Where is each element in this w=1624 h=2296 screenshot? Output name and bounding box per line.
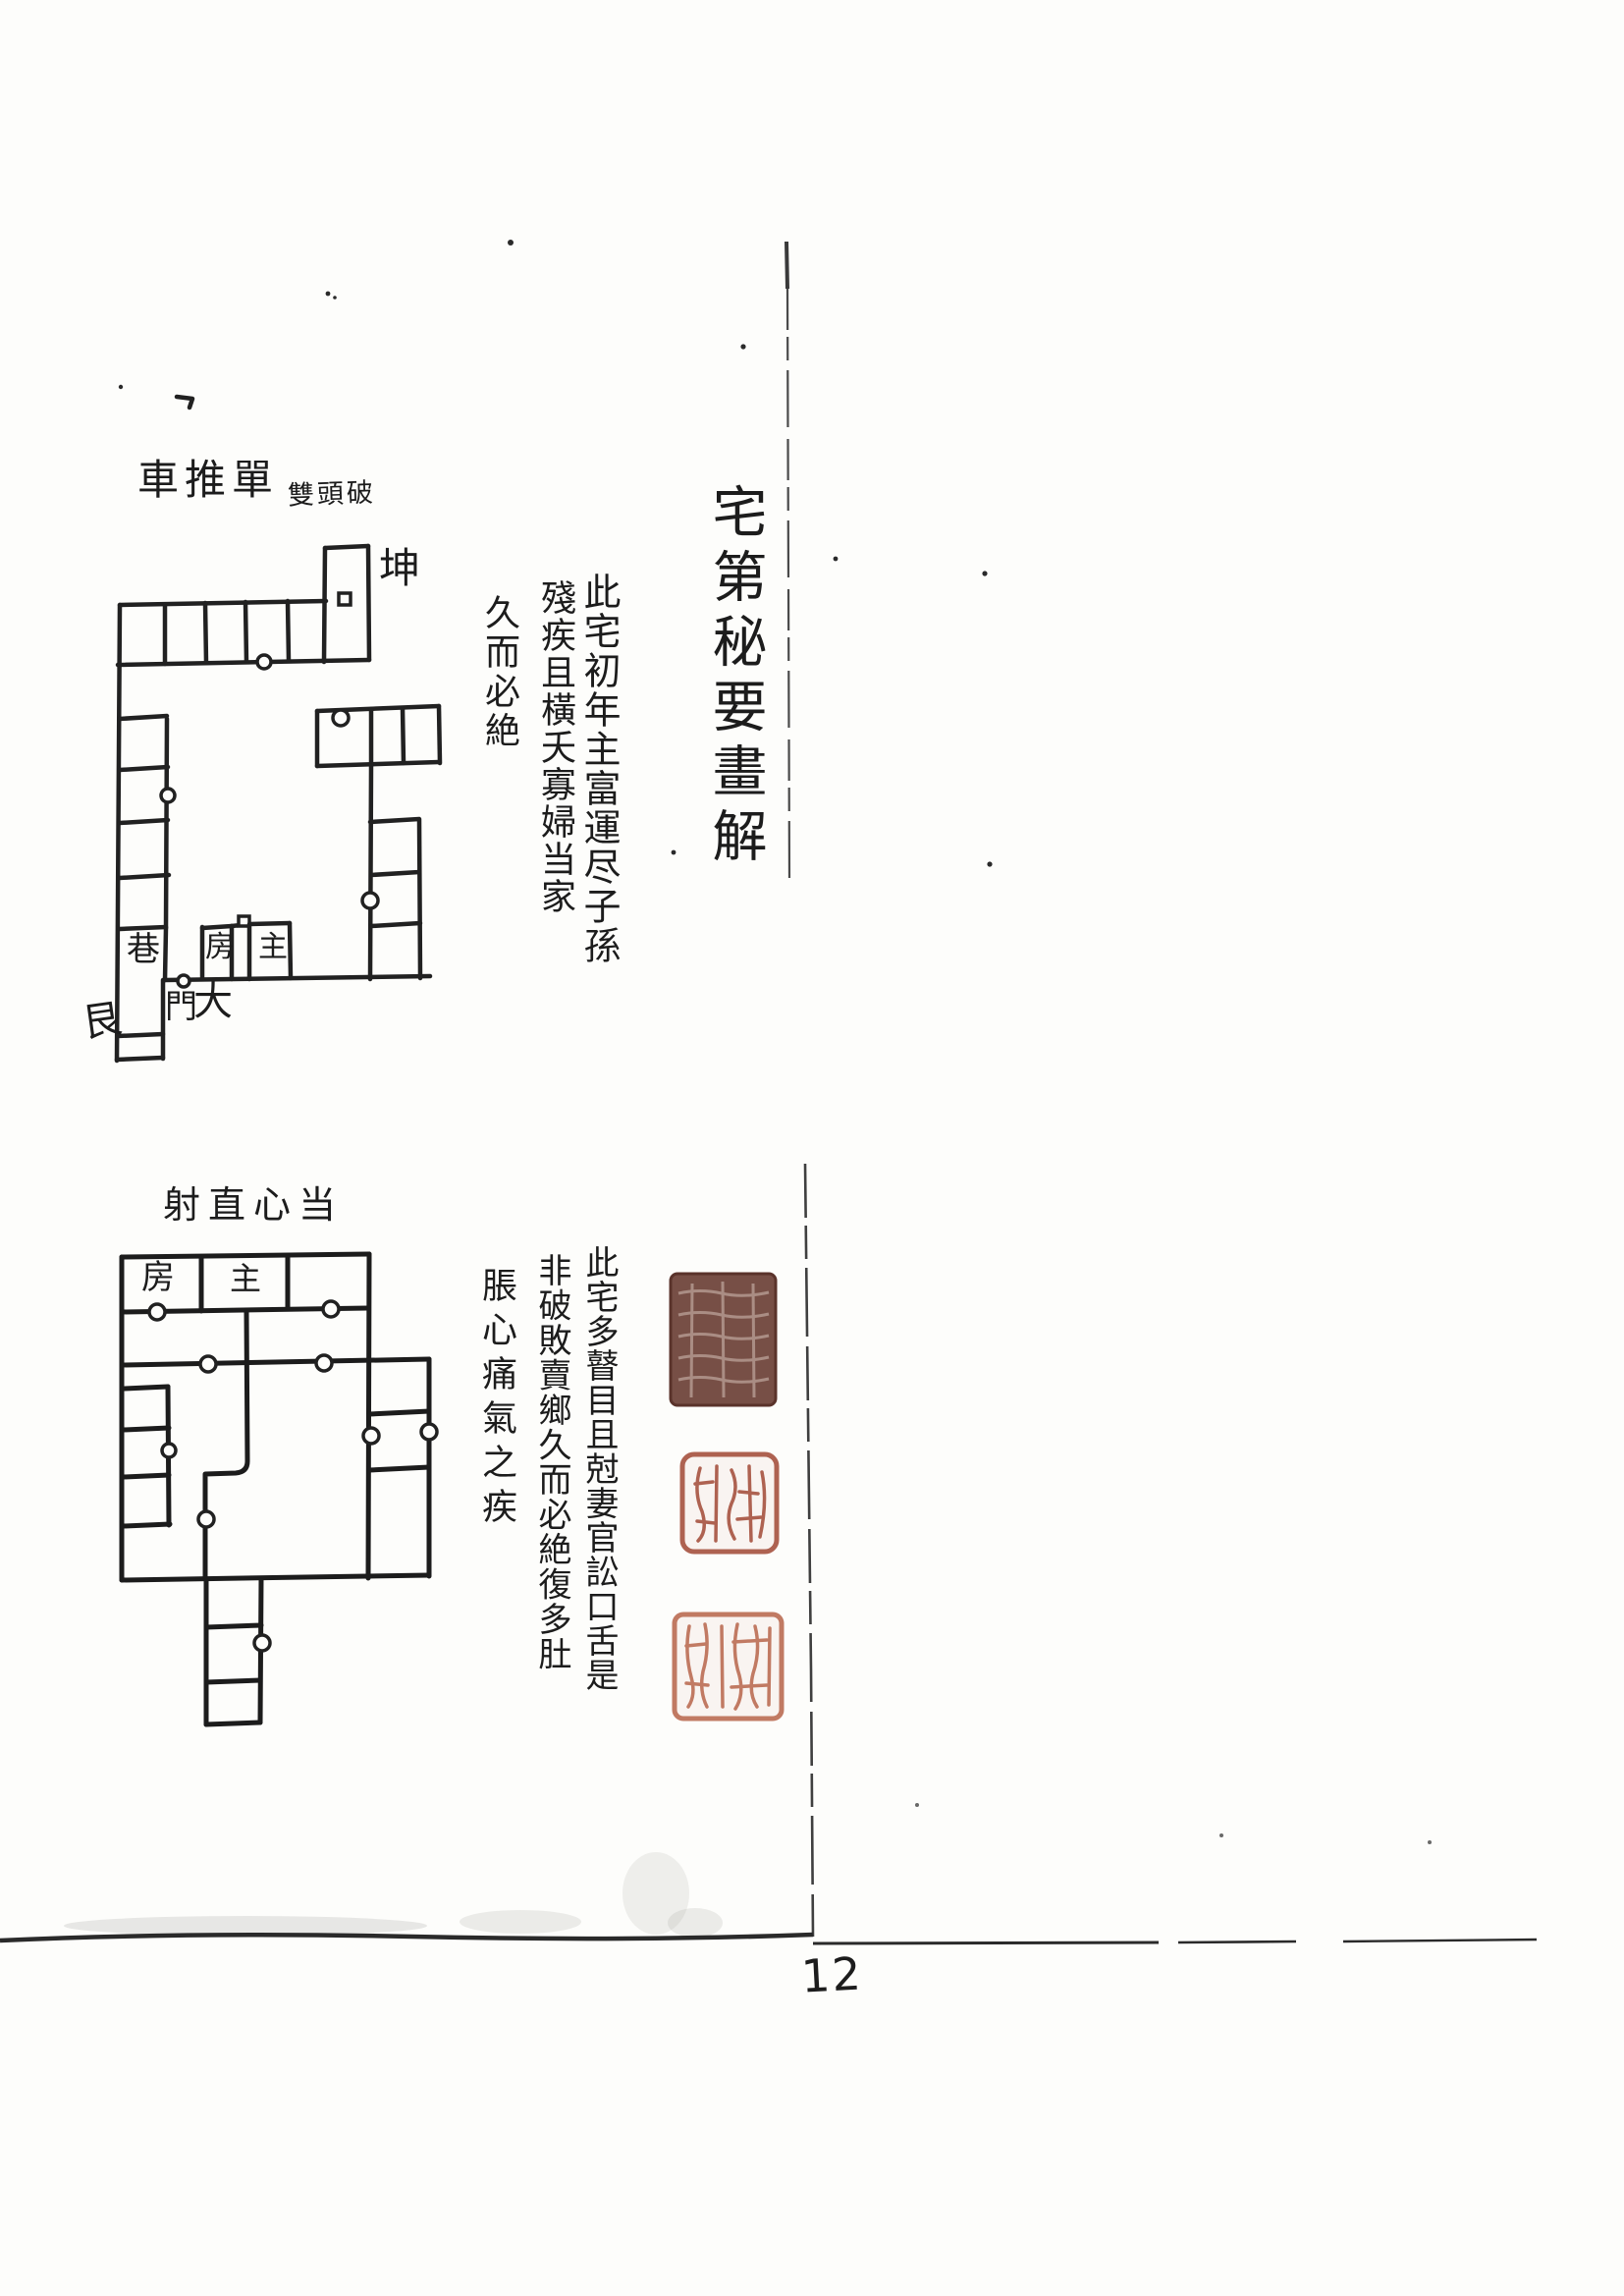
door-marker [339,593,351,605]
diagram2-main-label: 主 [230,1263,261,1294]
diagram2-room-label: 房 [141,1261,175,1294]
seal-2-red-relief [682,1454,777,1552]
door-marker [316,1355,332,1371]
diagram1-main-label: 主 [258,933,288,962]
page-title: 宅第秘要畫解 [707,483,762,872]
diagram1-caption: 車推單 [137,460,279,501]
diagram1-caption-note: 雙頭破 [288,479,377,509]
diagram1-room-label: 房 [205,933,235,962]
diagram1-commentary-col1: 此宅初年主富運尽子孫 [580,573,618,965]
scanned-manuscript-page: 宅第秘要畫解 車推單 雙頭破 坤 艮 巷 房 主 大 門 此宅初年主富運尽子孫 … [0,0,1624,2296]
diagram2-caption: 射直心当 [163,1186,344,1224]
diagram1-gate-label-men: 門 [165,990,197,1022]
door-marker [162,1444,176,1457]
door-marker [149,1304,165,1320]
door-marker [333,710,349,726]
door-marker [200,1356,216,1372]
page-number: 12 [800,1950,864,1998]
stray-ink-mark [177,397,192,408]
diagram1-gate-label-da: 大 [193,982,233,1021]
door-marker [254,1635,270,1651]
door-marker [363,1428,379,1444]
door-marker [362,893,378,908]
floor-plan-2 [122,1254,437,1724]
seal-1-dark-square [671,1274,776,1405]
door-marker [161,789,175,802]
diagram1-lane-label: 巷 [127,933,160,966]
door-marker [421,1424,437,1440]
diagram2-commentary-col1: 此宅多瞽目且尅妻官訟口舌是 [582,1245,616,1692]
bottom-scan-border [0,1852,1537,1943]
door-marker [178,975,189,987]
door-marker [323,1301,339,1317]
page-fold-line [786,242,813,1937]
seal-3-light-red [675,1614,782,1719]
diagram1-commentary-col2: 殘疾且橫夭寡婦当家 [537,579,572,915]
diagram2-commentary-col3: 脹心痛氣之疾 [478,1267,514,1532]
door-marker [257,655,271,669]
door-marker [198,1511,214,1527]
diagram1-trigram-kun: 坤 [379,548,420,589]
diagram1-commentary-col3: 久而必絶 [481,594,516,751]
diagram1-trigram-gen: 艮 [80,999,124,1043]
diagram2-commentary-col2: 非破敗賣鄉久而必絶復多肚 [535,1253,568,1671]
